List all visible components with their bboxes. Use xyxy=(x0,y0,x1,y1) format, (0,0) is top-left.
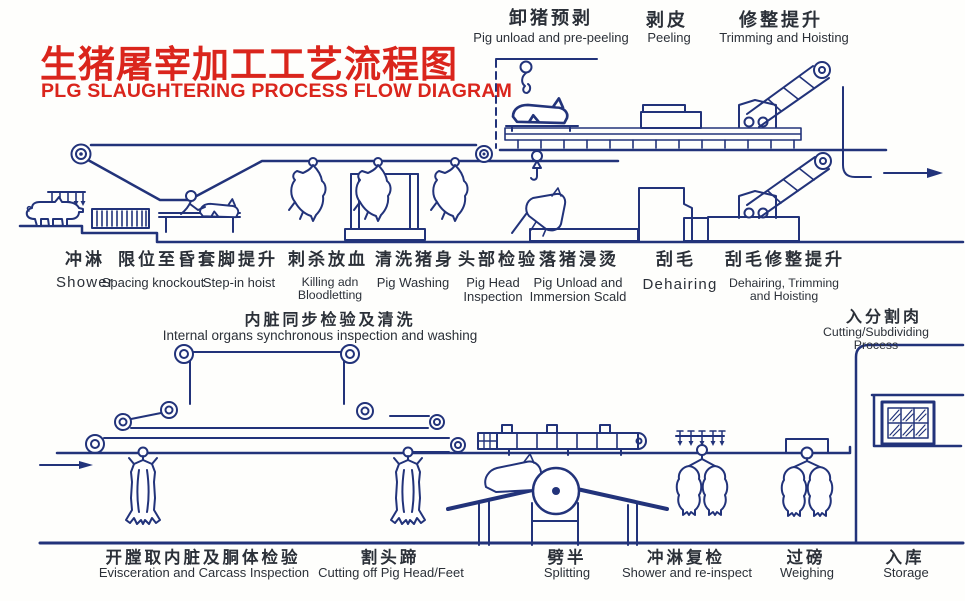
station-organ-inspection-zh: 内脏同步检验及清洗 xyxy=(244,312,415,329)
station-unload-prepeel-zh: 卸猪预剥 xyxy=(509,9,593,28)
station-knockout-en: Spacing knockout xyxy=(102,276,205,290)
station-shower-zh: 冲淋 xyxy=(65,251,105,269)
station-shower-reinspect-en: Shower and re-inspect xyxy=(622,566,752,580)
overhead-track-graphic xyxy=(478,425,646,455)
station-immersion-scald-en: Pig Unload and Immersion Scald xyxy=(530,276,627,304)
hoist-table-graphic xyxy=(159,191,240,232)
lower-main-rail xyxy=(40,447,850,469)
station-cutting-process-en: Cutting/Subdividing Process xyxy=(823,326,929,353)
station-cut-head-feet-en: Cutting off Pig Head/Feet xyxy=(318,566,464,580)
restrainer-knockout-graphic xyxy=(92,209,149,228)
hanging-pig-icon xyxy=(289,158,468,221)
upper-ground xyxy=(20,226,963,242)
station-knockout-zh: 限位至昏 xyxy=(118,251,198,269)
splitting-saw-graphic xyxy=(448,454,667,545)
station-cutting-process-zh: 入分割肉 xyxy=(846,309,922,326)
trimming-hoist-elevator-graphic xyxy=(739,62,830,127)
station-organ-inspection-en: Internal organs synchronous inspection a… xyxy=(163,329,477,344)
station-stepin-hoist-en: Step-in hoist xyxy=(203,276,275,290)
station-trimming-hoisting-en: Trimming and Hoisting xyxy=(719,31,849,45)
storage-room-graphic xyxy=(872,395,963,446)
upper-exit-connector xyxy=(843,87,943,178)
reinspect-shower-graphic xyxy=(676,431,725,446)
station-evisceration-en: Evisceration and Carcass Inspection xyxy=(99,566,309,580)
dehairing-hoist-elevator-graphic xyxy=(739,153,831,218)
eviscerated-carcass-icon xyxy=(126,448,425,525)
station-trimming-hoisting-zh: 修整提升 xyxy=(739,11,823,30)
station-head-inspection-en: Pig Head Inspection xyxy=(463,276,522,304)
process-flow-poster: 生猪屠宰加工工艺流程图 PLG SLAUGHTERING PROCESS FLO… xyxy=(0,0,965,601)
station-splitting-en: Splitting xyxy=(544,566,590,580)
station-dehairing-zh: 刮毛 xyxy=(656,251,696,269)
station-immersion-scald-zh: 落猪浸烫 xyxy=(539,251,619,269)
rail-pulley-right xyxy=(476,146,492,162)
rail-pulley-left xyxy=(72,145,91,164)
station-stepin-hoist-zh: 套脚提升 xyxy=(198,251,278,269)
station-killing-en: Killing adn Bloodletting xyxy=(298,276,362,303)
station-pig-washing-zh: 清洗猪身 xyxy=(375,251,455,269)
station-pig-washing-en: Pig Washing xyxy=(377,276,450,290)
station-dehair-trim-hoist-zh: 刮毛修整提升 xyxy=(725,251,845,269)
station-peeling-zh: 剥皮 xyxy=(646,11,688,30)
station-peeling-en: Peeling xyxy=(647,31,690,45)
scald-tank-graphic xyxy=(530,229,638,241)
station-unload-prepeel-en: Pig unload and pre-peeling xyxy=(473,31,628,45)
organ-inspection-loop-graphic xyxy=(86,345,465,453)
trolley-hook-icon xyxy=(531,151,542,180)
page-subtitle: PLG SLAUGHTERING PROCESS FLOW DIAGRAM xyxy=(41,80,512,103)
weighing-scale-graphic xyxy=(782,439,833,516)
station-storage-en: Storage xyxy=(883,566,929,580)
half-carcass-pair-shower xyxy=(677,445,728,515)
station-dehair-trim-hoist-en: Dehairing, Trimming and Hoisting xyxy=(729,277,839,304)
station-weighing-en: Weighing xyxy=(780,566,834,580)
station-head-inspection-zh: 头部检验 xyxy=(458,251,538,269)
station-dehairing-en: Dehairing xyxy=(642,277,717,293)
station-killing-zh: 刺杀放血 xyxy=(288,251,368,269)
